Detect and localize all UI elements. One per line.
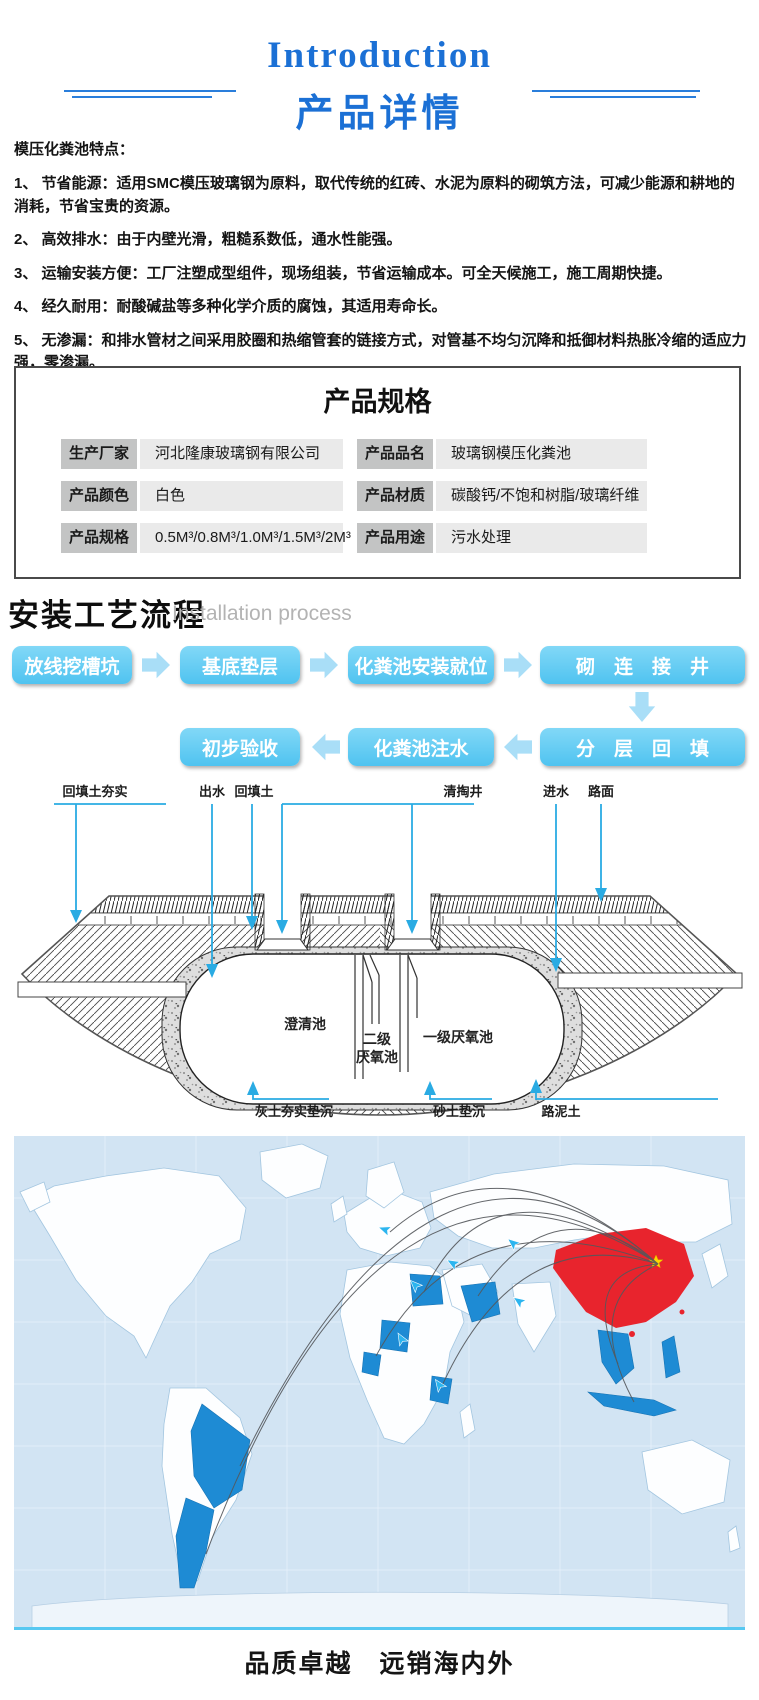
flow-step-layout-excavation: 放线挖槽坑 (12, 646, 132, 684)
spec-value-color: 白色 (140, 481, 343, 511)
spec-value-material: 碳酸钙/不饱和树脂/玻璃纤维 (436, 481, 647, 511)
arrow-down-icon (627, 692, 657, 722)
arrow-right-icon (504, 650, 532, 680)
page-title-english: Introduction (0, 34, 759, 77)
feature-item-3: 3、 运输安装方便：工厂注塑成型组件，现场组装，节省运输成本。可全天候施工，施工… (14, 263, 747, 286)
spec-label-usage: 产品用途 (357, 523, 433, 553)
header-divider-left-bottom (72, 96, 212, 98)
label-secondary-anaerobic-line1: 二级 (363, 1031, 392, 1047)
spec-row: 产品规格 0.5M³/0.8M³/1.0M³/1.5M³/2M³ 产品用途 污水… (61, 523, 739, 553)
flow-step-tank-placement: 化粪池安装就位 (348, 646, 494, 684)
spec-table: 产品规格 生产厂家 河北隆康玻璃钢有限公司 产品品名 玻璃钢模压化粪池 产品颜色… (14, 366, 741, 579)
spec-value-size: 0.5M³/0.8M³/1.0M³/1.5M³/2M³ (140, 523, 343, 553)
flow-step-base-cushion: 基底垫层 (180, 646, 300, 684)
process-section-subtitle: Installation process (172, 602, 352, 626)
feature-item-2: 2、 高效排水：由于内壁光滑，粗糙系数低，通水性能强。 (14, 229, 747, 252)
label-inlet: 进水 (543, 784, 570, 799)
arrow-left-icon (312, 732, 340, 762)
road-surface-layers (22, 896, 737, 925)
label-road-surface: 路面 (588, 784, 614, 799)
spec-grid: 生产厂家 河北隆康玻璃钢有限公司 产品品名 玻璃钢模压化粪池 产品颜色 白色 产… (61, 439, 739, 553)
spec-label-size: 产品规格 (61, 523, 137, 553)
spec-value-product-name: 玻璃钢模压化粪池 (436, 439, 647, 469)
label-lime-soil-bedding: 灰土夯实垫沉 (255, 1104, 333, 1119)
feature-item-4: 4、 经久耐用：耐酸碱盐等多种化学介质的腐蚀，其适用寿命长。 (14, 296, 747, 319)
label-secondary-anaerobic-line2: 厌氧池 (356, 1049, 398, 1065)
arrow-right-icon (142, 650, 170, 680)
septic-tank-body (180, 954, 564, 1104)
flow-step-layered-backfill: 分 层 回 填 (540, 728, 745, 766)
header-divider-right-top (532, 90, 700, 92)
header-divider-right-bottom (550, 96, 696, 98)
outlet-pipe (18, 982, 186, 997)
header-divider-left-top (64, 90, 236, 92)
label-primary-anaerobic-chamber: 一级厌氧池 (423, 1029, 493, 1045)
spec-value-usage: 污水处理 (436, 523, 647, 553)
features-heading: 模压化粪池特点： (14, 138, 747, 159)
label-clarification-chamber: 澄清池 (284, 1016, 326, 1032)
spec-label-manufacturer: 生产厂家 (61, 439, 137, 469)
arrow-right-icon (310, 650, 338, 680)
spec-row: 产品颜色 白色 产品材质 碳酸钙/不饱和树脂/玻璃纤维 (61, 481, 739, 511)
spec-table-title: 产品规格 (16, 380, 739, 419)
label-cleanout-well: 清掏井 (443, 784, 482, 799)
footer-caption: 品质卓越 远销海内外 (0, 1644, 759, 1680)
spec-label-color: 产品颜色 (61, 481, 137, 511)
spec-row: 生产厂家 河北隆康玻璃钢有限公司 产品品名 玻璃钢模压化粪池 (61, 439, 739, 469)
spec-value-manufacturer: 河北隆康玻璃钢有限公司 (140, 439, 343, 469)
map-antarctica (32, 1592, 728, 1628)
arrow-left-icon (504, 732, 532, 762)
spec-label-product-name: 产品品名 (357, 439, 433, 469)
flow-step-fill-water: 化粪池注水 (348, 728, 494, 766)
world-map (14, 1136, 745, 1630)
label-sand-bedding: 砂土垫沉 (432, 1104, 485, 1119)
label-backfill-compaction: 回填土夯实 (62, 784, 127, 799)
flow-step-initial-acceptance: 初步验收 (180, 728, 300, 766)
flow-step-build-connection-well: 砌 连 接 井 (540, 646, 745, 684)
label-road-soil: 路泥土 (541, 1104, 580, 1119)
inlet-pipe (558, 973, 742, 988)
map-bottom-border (14, 1627, 745, 1630)
spec-label-material: 产品材质 (357, 481, 433, 511)
label-outlet: 出水 (199, 784, 226, 799)
product-detail-page: Introduction 产品详情 模压化粪池特点： 1、 节省能源：适用SMC… (0, 0, 759, 1700)
installation-diagram: 澄清池 二级 厌氧池 一级厌氧池 回填 (14, 782, 745, 1120)
label-backfill-soil: 回填土 (234, 784, 273, 799)
feature-item-1: 1、 节省能源：适用SMC模压玻璃钢为原料，取代传统的红砖、水泥为原料的砌筑方法… (14, 173, 747, 218)
